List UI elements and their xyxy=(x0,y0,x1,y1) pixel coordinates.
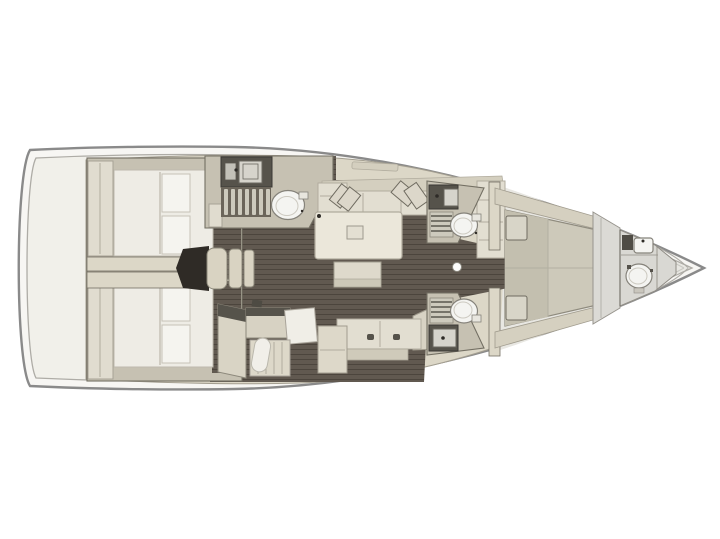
toilet-tank xyxy=(472,315,481,322)
faucet-icon xyxy=(441,336,445,340)
aft-head-port xyxy=(205,156,333,228)
grate-slat xyxy=(224,189,228,215)
locker xyxy=(622,235,633,250)
galley-worktop xyxy=(246,308,290,316)
flush-button xyxy=(301,210,303,212)
table-corner-fitting xyxy=(317,214,321,218)
pillow xyxy=(506,216,527,240)
locker-handle xyxy=(367,334,374,340)
yacht-floor-plan xyxy=(0,0,720,539)
grate-slat xyxy=(259,189,263,215)
companionway-step xyxy=(229,249,242,288)
counter-locker xyxy=(225,163,236,180)
settee-seat xyxy=(337,319,421,349)
faucet-icon xyxy=(234,168,237,171)
toilet-tank xyxy=(299,192,308,199)
grate-slat xyxy=(238,189,242,215)
ottoman-front xyxy=(334,279,381,287)
fitting xyxy=(650,269,653,272)
mast-post xyxy=(453,263,462,272)
yacht-floorplan-page xyxy=(0,0,720,539)
grate-slat xyxy=(266,189,270,215)
settee-front xyxy=(337,349,408,360)
fitting xyxy=(627,265,631,269)
sink-icon xyxy=(444,189,458,206)
grate-slat xyxy=(252,189,256,215)
grate-slat xyxy=(231,189,235,215)
companionway-step xyxy=(244,250,254,287)
pillow xyxy=(162,325,190,363)
table-inset xyxy=(347,226,363,239)
pillow xyxy=(506,296,527,320)
step-box xyxy=(209,204,222,227)
pillow xyxy=(162,283,190,321)
toilet-tank xyxy=(472,214,481,221)
chart-table xyxy=(285,308,318,344)
companionway-step xyxy=(207,248,227,289)
galley-item xyxy=(251,299,262,307)
pillow xyxy=(162,216,190,254)
flush-button xyxy=(475,232,477,234)
forward-bulkhead xyxy=(593,212,620,324)
faucet-icon xyxy=(435,194,439,198)
faucet-icon xyxy=(642,240,645,243)
grate-slat xyxy=(245,189,249,215)
locker-handle xyxy=(393,334,400,340)
pillow xyxy=(162,174,190,212)
toilet-base xyxy=(634,288,644,293)
